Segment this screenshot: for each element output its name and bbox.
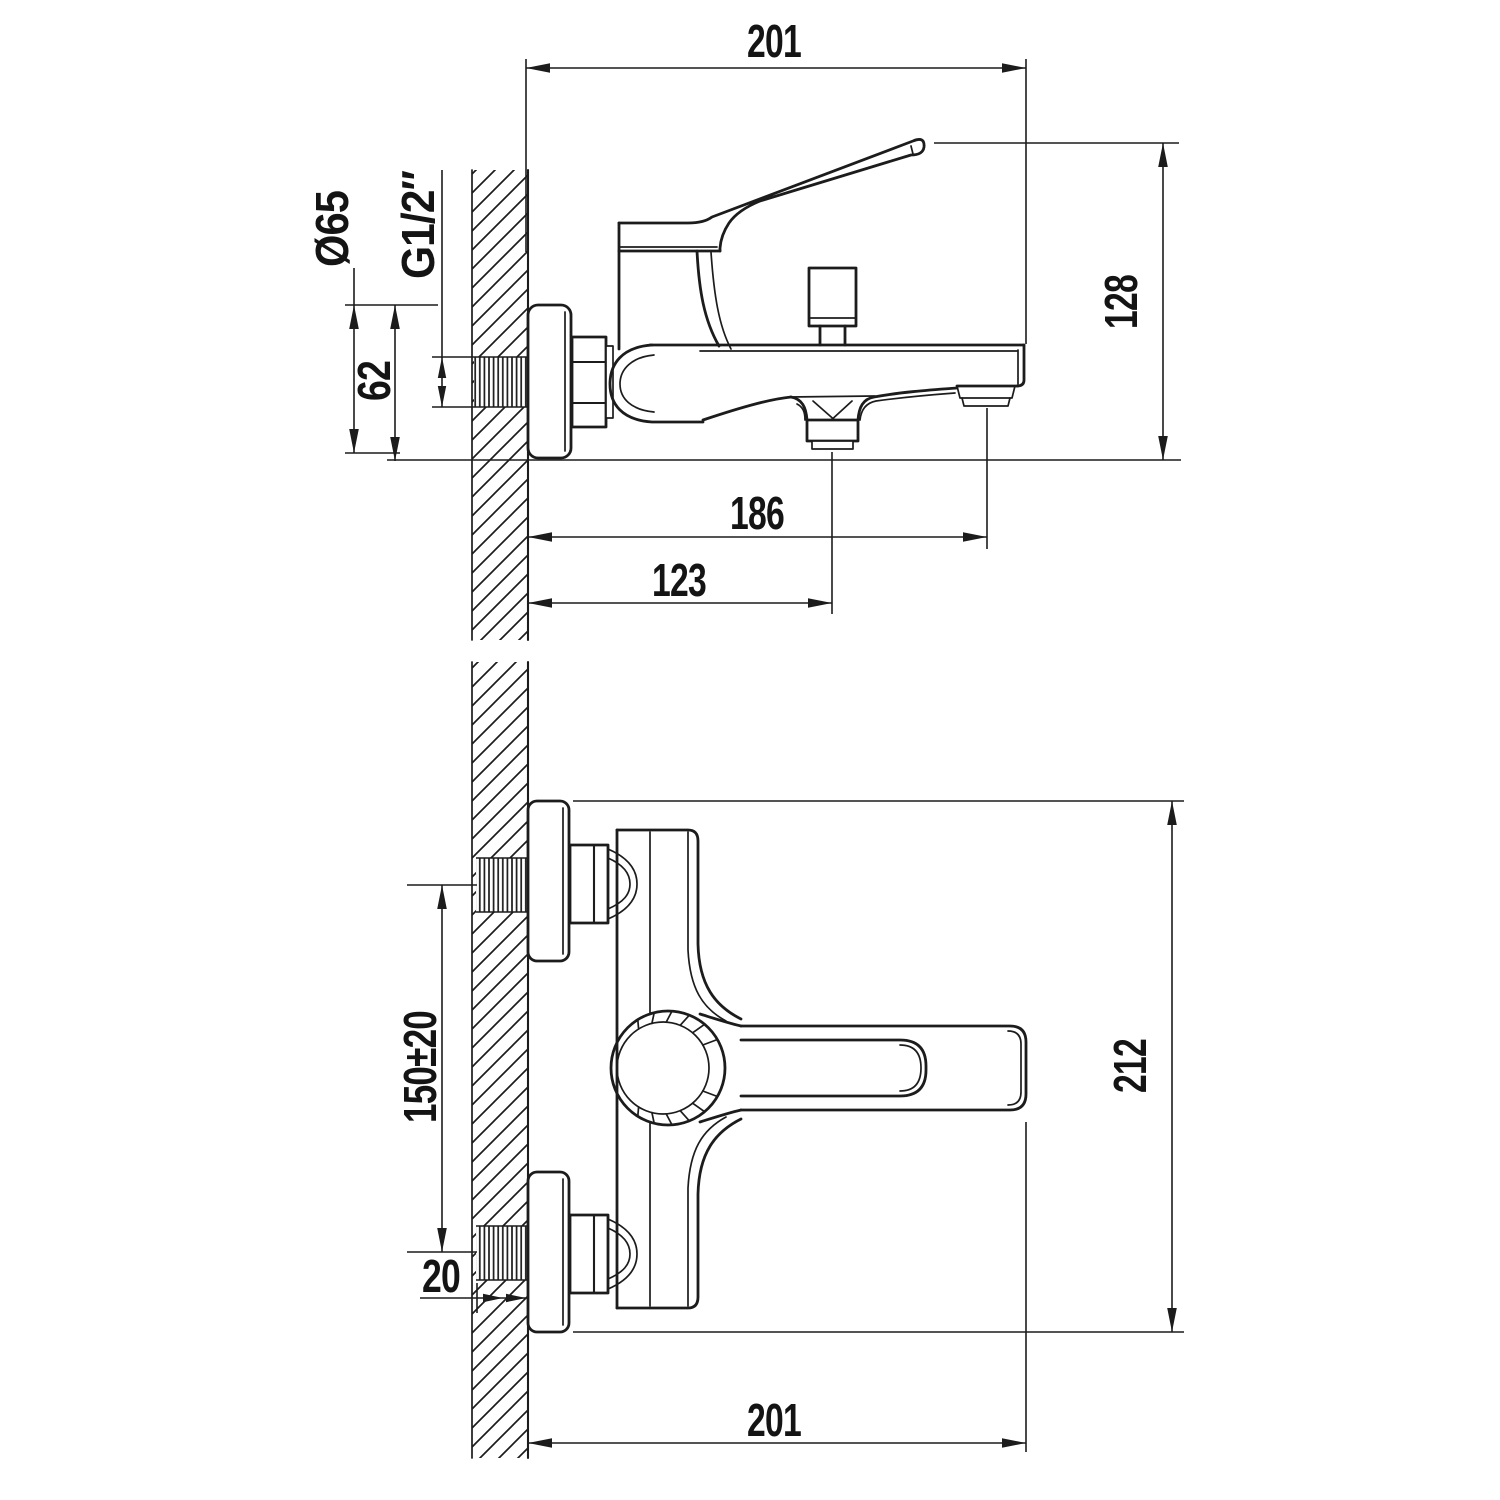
- dim-side-overall-depth-201: 201: [526, 15, 1026, 344]
- connection-nut-front-lower: [570, 1215, 637, 1293]
- valve-cap-front: [611, 1011, 725, 1125]
- dim-label-123: 123: [652, 554, 706, 606]
- handle-front: [700, 1014, 1026, 1122]
- connection-nut-front-upper: [570, 845, 637, 923]
- dim-side-spout-reach-186: 186: [528, 408, 987, 549]
- dim-label-201-side: 201: [747, 15, 801, 67]
- dim-label-150: 150±20: [394, 1011, 446, 1123]
- escutcheon-side: [528, 305, 571, 458]
- wall-thread-side: [432, 357, 527, 407]
- connection-nut-side: [572, 337, 613, 427]
- dim-label-128: 128: [1095, 275, 1147, 329]
- shower-outlet-side: [807, 420, 858, 449]
- faucet-dimension-drawing: 201 128 Ø65 62 G1/2″ 186: [0, 0, 1500, 1500]
- diverter-knob-side: [809, 268, 856, 345]
- valve-cap-ring-ticks: [638, 1011, 718, 1125]
- dim-label-20: 20: [422, 1250, 460, 1302]
- dim-label-g12: G1/2″: [392, 170, 444, 279]
- dim-label-62: 62: [348, 361, 400, 401]
- wall-thread-front-lower: [476, 1226, 527, 1280]
- spout-body-side: [650, 345, 1024, 423]
- escutcheon-front-lower: [528, 1172, 569, 1332]
- dim-side-thread-g12: G1/2″: [392, 170, 446, 407]
- dim-label-212: 212: [1104, 1039, 1156, 1093]
- escutcheon-front-upper: [528, 801, 569, 961]
- dim-front-connection-spacing-150: 150±20: [394, 885, 477, 1252]
- wall-section-front-view: [472, 662, 528, 1458]
- dim-label-186: 186: [730, 487, 784, 539]
- dim-label-dia65: Ø65: [306, 191, 358, 267]
- wall-thread-front-upper: [476, 858, 527, 912]
- faucet-front-view: [476, 801, 1026, 1332]
- technical-drawing-canvas: 201 128 Ø65 62 G1/2″ 186: [0, 0, 1500, 1500]
- spout-outlet-side: [957, 386, 1015, 406]
- body-front: [617, 830, 741, 1308]
- valve-body-joint-side: [610, 345, 703, 422]
- dim-side-shower-reach-123: 123: [528, 452, 832, 614]
- dim-front-height-212: 212: [573, 801, 1184, 1332]
- dim-label-201-front: 201: [747, 1394, 801, 1446]
- handle-lever-side: [619, 139, 924, 349]
